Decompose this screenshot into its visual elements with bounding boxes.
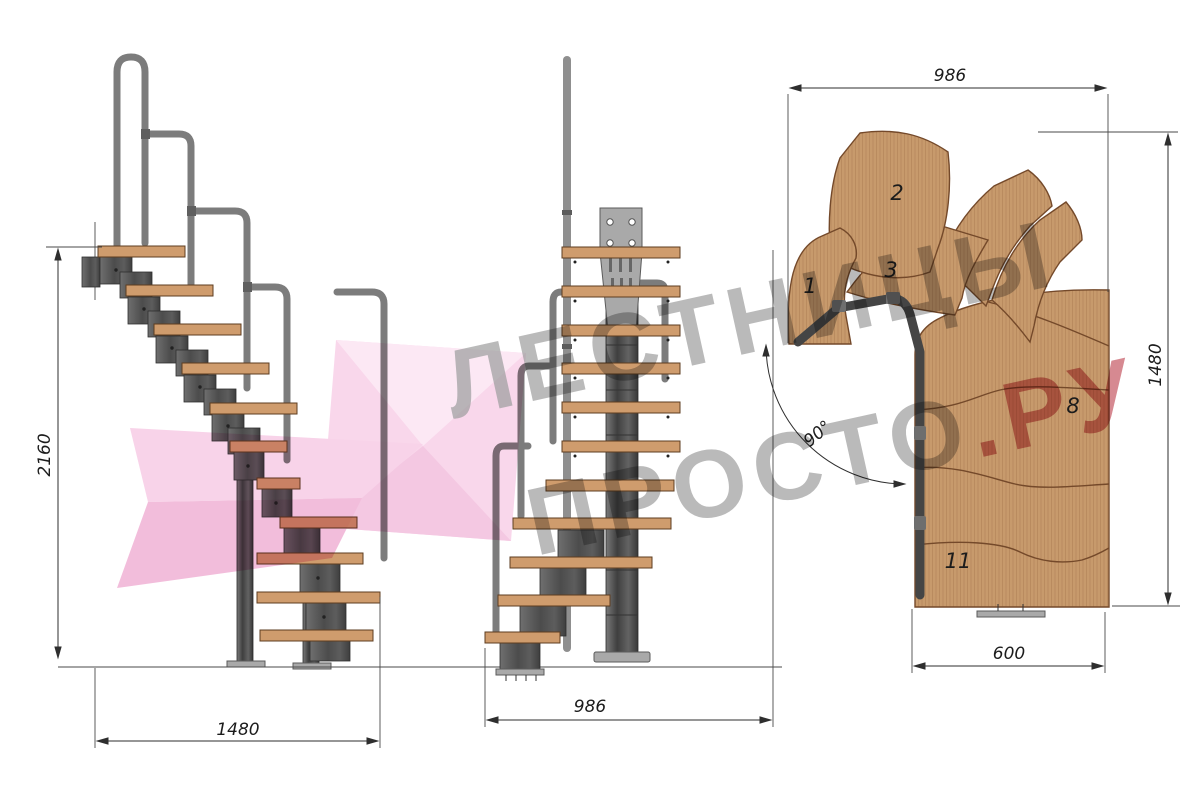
dim-label-exit-width: 600 [993,644,1025,664]
rail-connector [243,282,252,292]
rail-connector [141,129,150,139]
staircase-drawing: 2160 1480 [0,0,1200,790]
dim-label-side-width: 1480 [216,720,259,740]
dim-side-height: 2160 [35,247,102,658]
handrail-segment-2 [148,134,191,291]
dim-plan-exit-width: 600 [912,609,1105,673]
rail-connector [187,206,196,216]
dim-label-front-width: 986 [574,697,607,717]
handrail-loop [117,57,145,246]
step-label-2: 2 [890,181,903,205]
dim-label-side-height: 2160 [35,433,55,476]
dim-label-plan-width: 986 [934,66,967,86]
rail-joint [914,516,926,530]
dim-label-plan-depth: 1480 [1146,343,1166,386]
pole-joint [562,210,572,215]
step-label-11: 11 [945,549,972,573]
blueprint-canvas: 2160 1480 [0,0,1200,790]
